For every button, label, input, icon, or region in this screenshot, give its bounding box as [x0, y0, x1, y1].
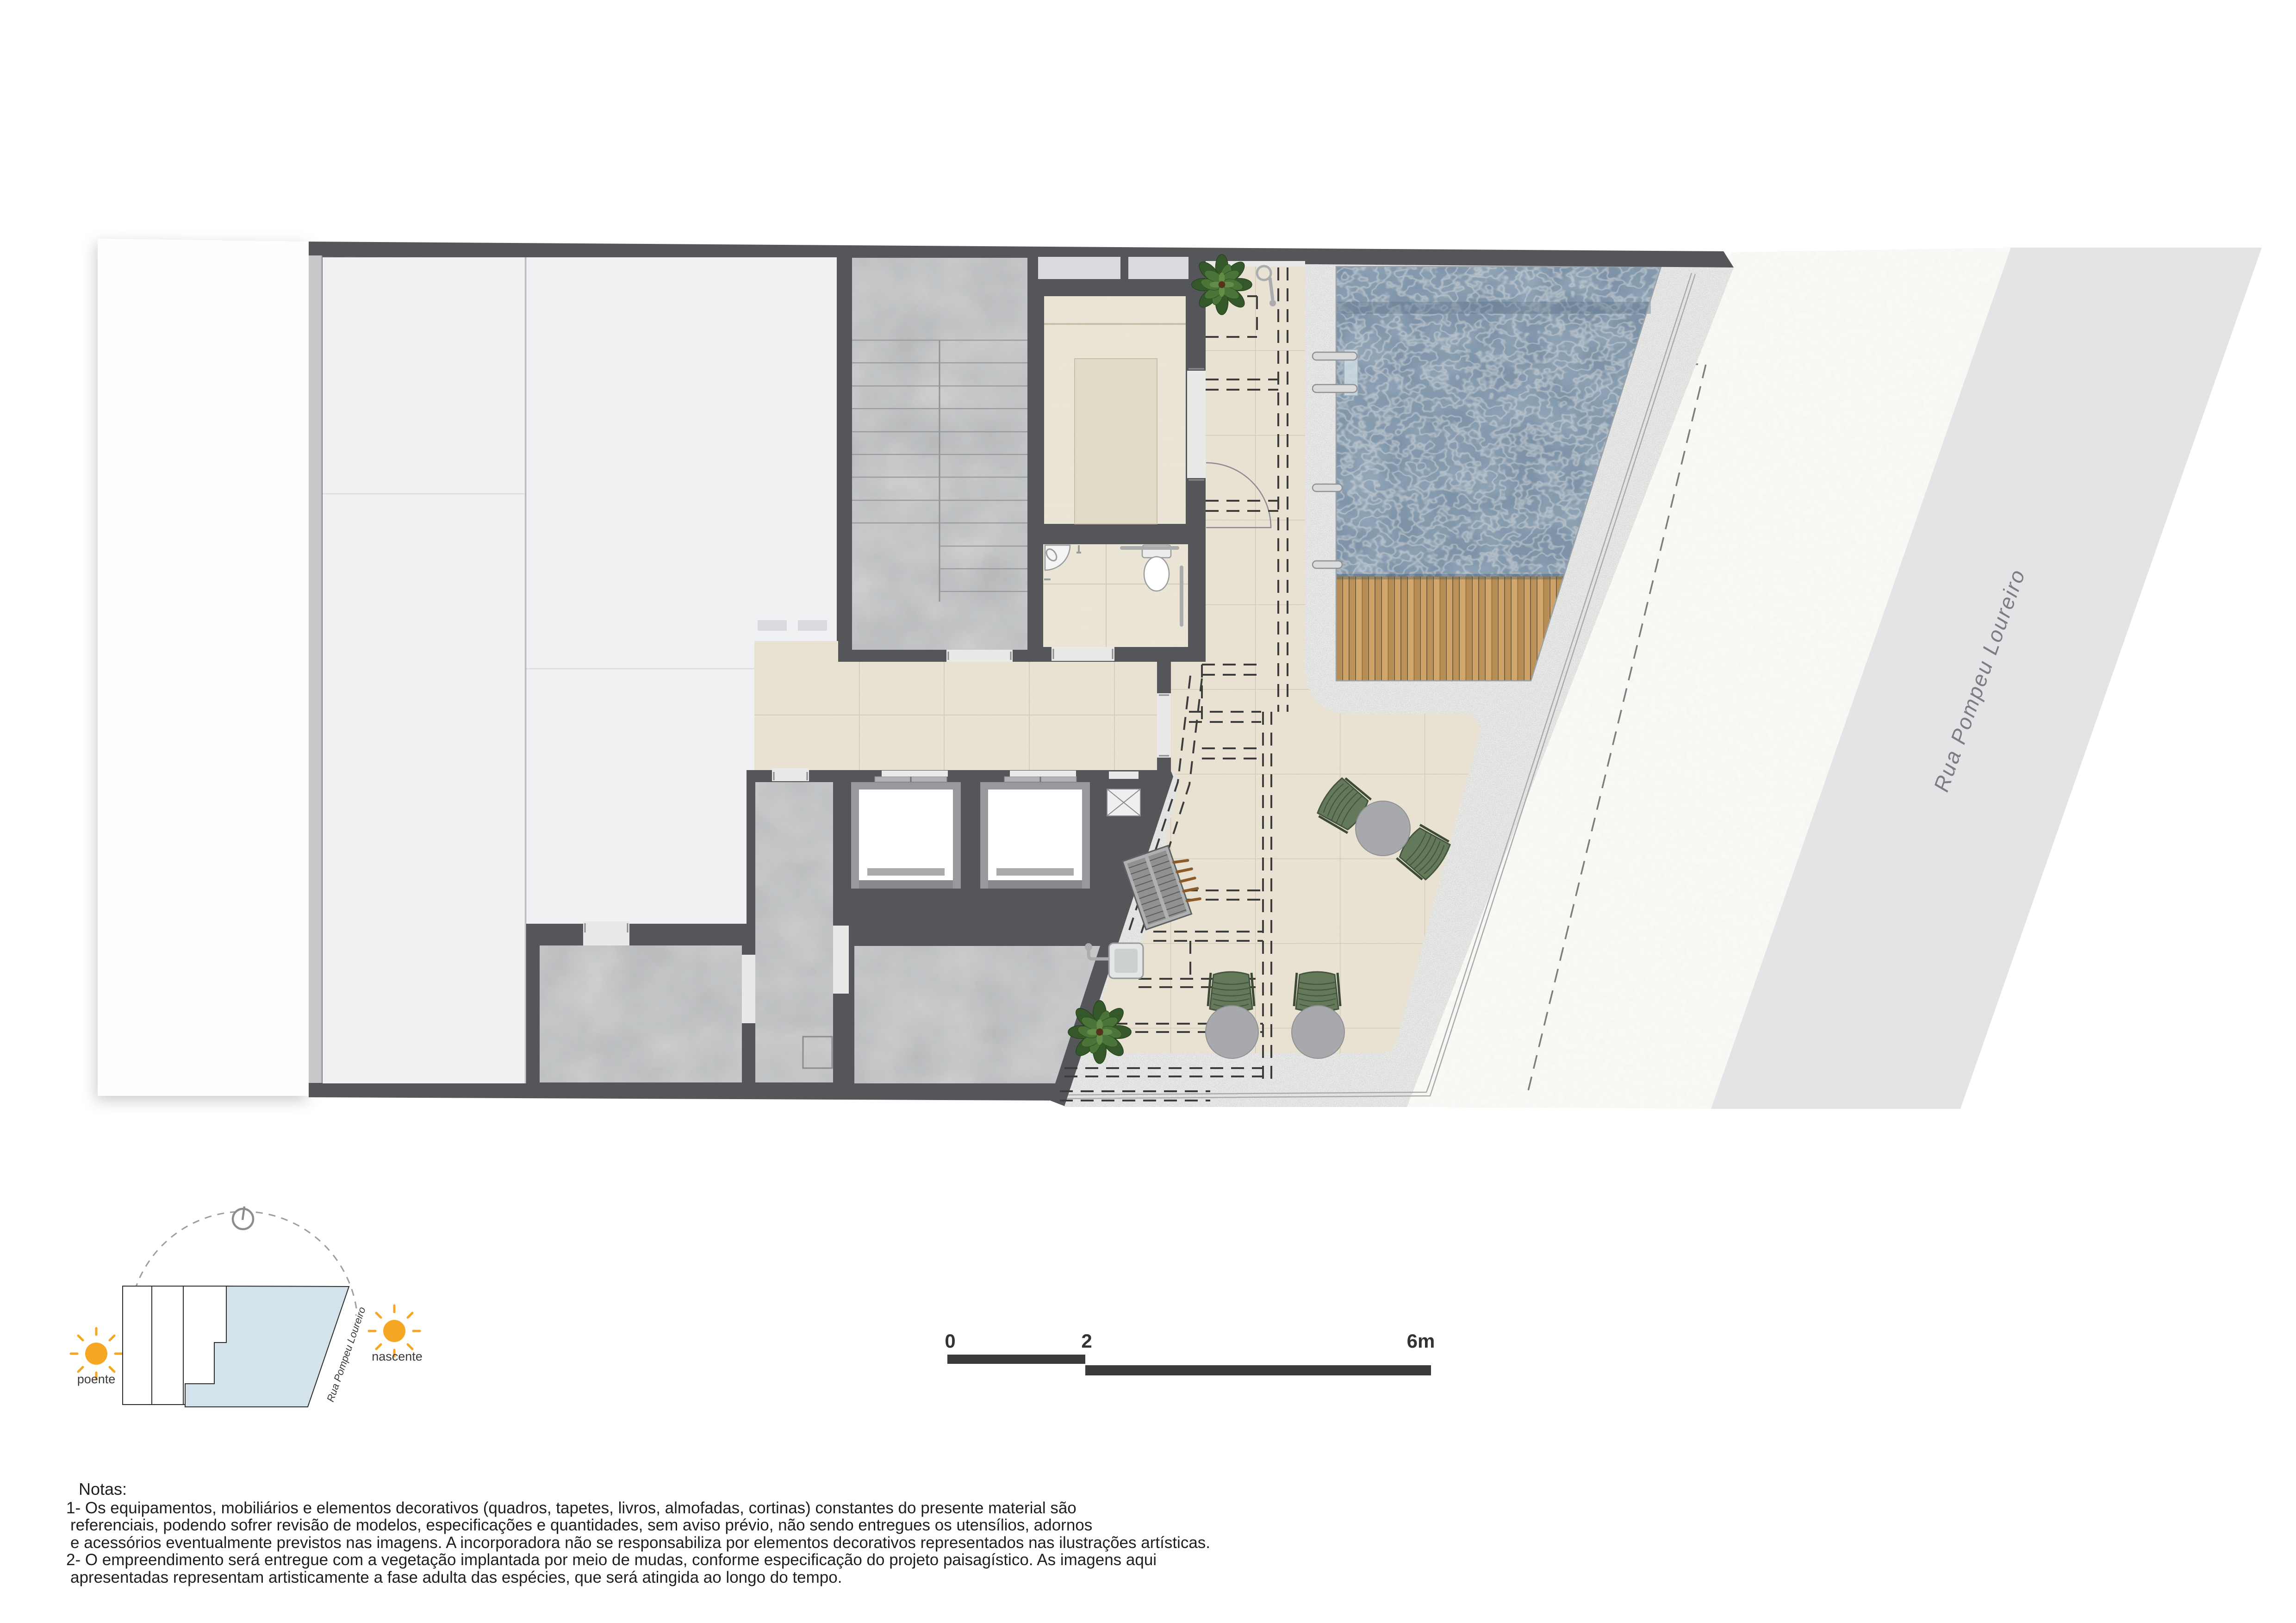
- svg-text:poente: poente: [77, 1372, 116, 1386]
- svg-text:2: 2: [1081, 1330, 1092, 1352]
- svg-text:nascente: nascente: [372, 1349, 423, 1363]
- svg-text:1- Os equipamentos, mobiliário: 1- Os equipamentos, mobiliários e elemen…: [66, 1499, 1076, 1517]
- svg-text:Notas:: Notas:: [79, 1480, 127, 1499]
- svg-text:0: 0: [945, 1330, 955, 1352]
- svg-text:apresentadas representam artis: apresentadas representam artisticamente …: [70, 1568, 842, 1586]
- svg-text:2- O empreendimento será entre: 2- O empreendimento será entregue com a …: [66, 1551, 1157, 1569]
- svg-text:6m: 6m: [1407, 1330, 1435, 1352]
- svg-text:e acessórios eventualmente pre: e acessórios eventualmente previstos nas…: [70, 1534, 1210, 1552]
- svg-text:referenciais, podendo sofrer r: referenciais, podendo sofrer revisão de …: [70, 1516, 1092, 1534]
